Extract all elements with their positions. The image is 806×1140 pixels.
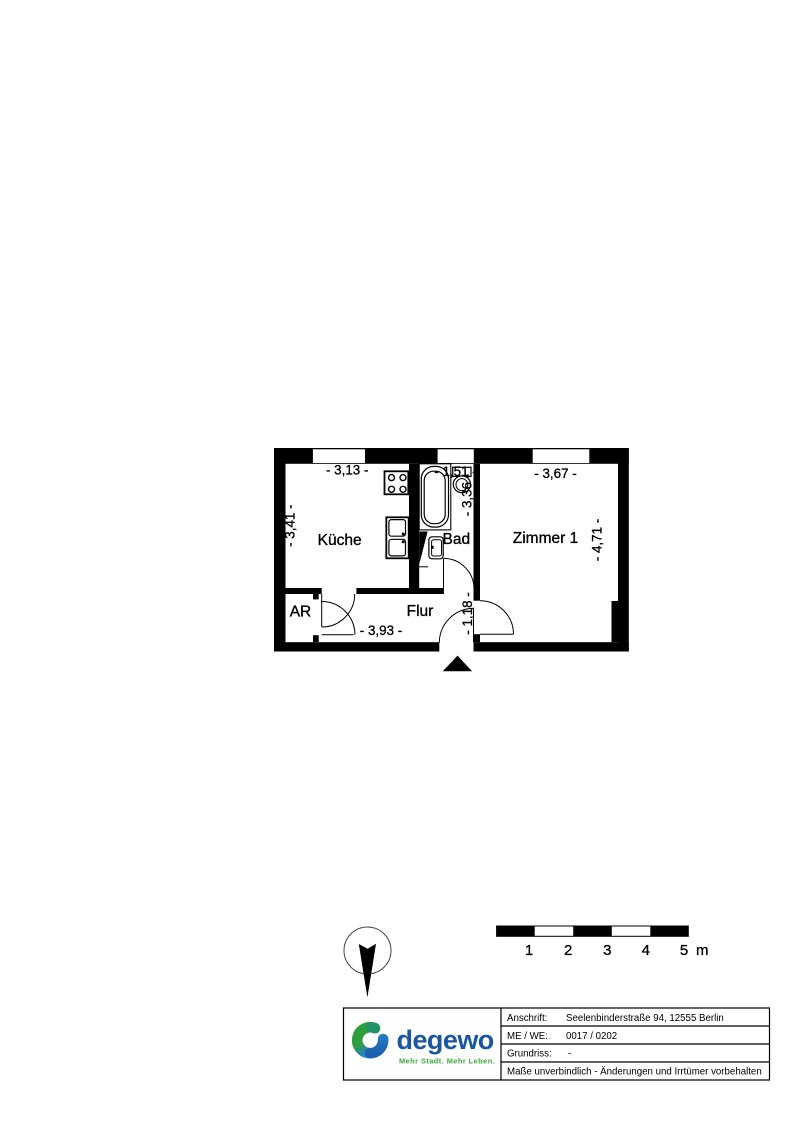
svg-text:Anschrift:: Anschrift:: [507, 1013, 547, 1024]
svg-text:- 3,36 -: - 3,36 -: [460, 474, 475, 516]
svg-text:-: -: [568, 1049, 571, 1060]
svg-text:4: 4: [642, 942, 650, 959]
svg-text:- 4,71 -: - 4,71 -: [590, 519, 605, 561]
svg-text:0017 / 0202: 0017 / 0202: [566, 1031, 617, 1042]
svg-text:1: 1: [525, 942, 533, 959]
svg-text:Küche: Küche: [318, 532, 362, 549]
svg-text:- 3,67 -: - 3,67 -: [534, 466, 576, 481]
svg-text:3: 3: [603, 942, 611, 959]
svg-text:Seelenbinderstraße 94, 12555 B: Seelenbinderstraße 94, 12555 Berlin: [566, 1013, 724, 1024]
svg-text:Bad: Bad: [443, 531, 471, 548]
svg-text:Flur: Flur: [407, 603, 434, 620]
svg-text:5: 5: [680, 942, 688, 959]
svg-text:degewo: degewo: [397, 1025, 494, 1055]
svg-text:- 3,93 -: - 3,93 -: [360, 623, 402, 638]
svg-text:ME / WE:: ME / WE:: [507, 1031, 548, 1042]
svg-text:- 3,41 -: - 3,41 -: [282, 504, 297, 546]
svg-text:- 1,18 -: - 1,18 -: [460, 592, 475, 634]
svg-text:AR: AR: [290, 604, 312, 621]
svg-text:Mehr Stadt. Mehr Leben.: Mehr Stadt. Mehr Leben.: [399, 1057, 495, 1066]
svg-text:Zimmer 1: Zimmer 1: [513, 530, 578, 547]
svg-text:m: m: [696, 942, 709, 959]
svg-text:2: 2: [564, 942, 572, 959]
svg-text:Maße unverbindlich - Änderunge: Maße unverbindlich - Änderungen und Irrt…: [507, 1067, 762, 1078]
svg-text:Grundriss:: Grundriss:: [507, 1049, 552, 1060]
svg-text:- 3,13 -: - 3,13 -: [326, 463, 368, 478]
